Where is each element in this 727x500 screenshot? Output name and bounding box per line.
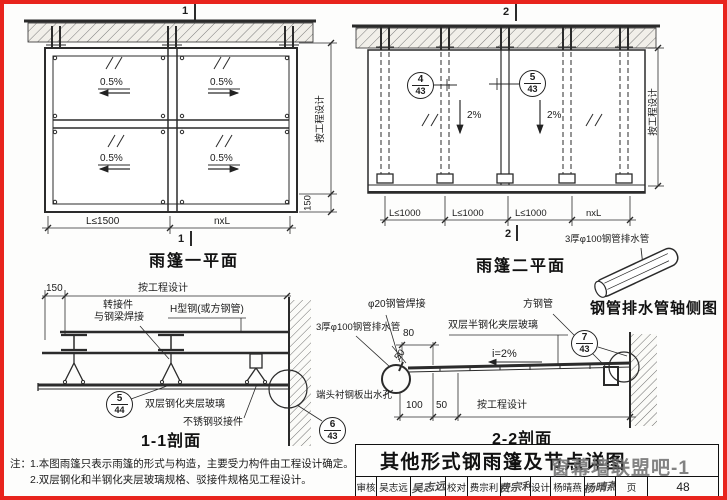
dim-label-80: 80 (403, 329, 414, 340)
dim-label-span: L≤1000 (452, 209, 484, 219)
section11-title: 1-1剖面 (141, 427, 201, 451)
detail-sheet: 43 (327, 431, 337, 442)
dim-label-design: 按工程设计 (645, 88, 659, 136)
designer-label: 设计 (531, 477, 551, 496)
slope-label: 2% (547, 111, 561, 122)
label-semi-tempered-glass: 双层半钢化夹层玻璃 (448, 321, 538, 332)
section-cut-label-1-top: 1 (182, 5, 188, 17)
note-line-2: 2.双层钢化和半钢化夹层玻璃规格、驳接件规格见工程设计。 (30, 475, 312, 486)
detail-number: 5 (524, 72, 541, 84)
section-cut-label-1-bottom: 1 (178, 233, 184, 245)
drawing-linework (0, 0, 727, 500)
checker-signature: 费宗利 (501, 477, 531, 496)
section-cut-label-2-top: 2 (503, 6, 509, 18)
label-h-steel: H型钢(或方钢管) (170, 305, 244, 316)
slope-label: 2% (467, 111, 481, 122)
detail-bubble-6-43: 6 43 (319, 417, 346, 444)
reviewer-label: 审核 (356, 477, 377, 496)
detail-number: 4 (412, 74, 429, 86)
detail-bubble-5-43: 5 43 (519, 70, 546, 97)
detail-bubble-5-44: 5 44 (106, 391, 133, 418)
detail-bubble-7-43: 7 43 (571, 330, 598, 357)
label-square-tube: 方钢管 (523, 300, 553, 311)
label-adapter: 转接件 (103, 301, 133, 312)
reviewer-signature: 吴志远 (411, 477, 446, 496)
notes-prefix: 注： (10, 459, 31, 470)
slope-label: 0.5% (100, 78, 123, 89)
pipe-axon-title: 钢管排水管轴侧图 (590, 297, 718, 318)
slope-label: 0.5% (210, 154, 233, 165)
reviewer-name: 吴志远 (377, 477, 411, 496)
label-pipe-weld: φ20钢管焊接 (368, 300, 426, 311)
section-cut-label-2-bottom: 2 (505, 228, 511, 240)
detail-sheet: 43 (415, 86, 425, 97)
label-drain-pipe: 3厚φ100钢管排水管 (316, 323, 400, 333)
detail-number: 5 (111, 393, 128, 405)
dim-label-design: 按工程设计 (477, 401, 527, 412)
dim-label-150: 150 (46, 284, 63, 295)
label-outlet-hole: 端头衬钢板出水孔 (316, 391, 392, 401)
dim-label-design: 按工程设计 (138, 284, 188, 295)
pipe-label: 3厚φ100钢管排水管 (565, 235, 649, 245)
detail-bubble-4-43: 4 43 (407, 72, 434, 99)
drawing-sheet: 1 0.5% 0.5% 0.5% 0.5% 按工程设计 150 L≤1500 n… (0, 0, 727, 500)
dim-label-span: nxL (586, 209, 601, 219)
label-laminated-glass: 双层钢化夹层玻璃 (145, 400, 225, 411)
dim-label-150: 150 (303, 195, 314, 211)
slope-label: 0.5% (210, 78, 233, 89)
detail-number: 6 (324, 419, 341, 431)
watermark: 窗幕墙联盟吧-1 (551, 453, 690, 480)
dim-label-design: 按工程设计 (312, 95, 326, 143)
label-slope: i=2% (492, 349, 517, 361)
checker-name: 费宗利 (468, 477, 501, 496)
checker-label: 校对 (446, 477, 468, 496)
dim-label-span: L≤1000 (515, 209, 547, 219)
slope-label: 0.5% (100, 154, 123, 165)
detail-sheet: 43 (527, 84, 537, 95)
plan2-title: 雨篷二平面 (476, 252, 566, 276)
label-adapter-weld: 与钢梁焊接 (94, 313, 144, 324)
detail-number: 7 (576, 332, 593, 344)
plan1-title: 雨篷一平面 (149, 247, 239, 271)
detail-sheet: 43 (579, 344, 589, 355)
dim-label-50: 50 (436, 401, 447, 412)
dim-label-100: 100 (406, 401, 423, 412)
dim-label-span: nxL (214, 217, 230, 228)
note-line-1: 1.本图雨篷只表示雨篷的形式与构造，主要受力构件由工程设计确定。 (30, 459, 354, 470)
detail-sheet: 44 (114, 405, 124, 416)
dim-label-span: L≤1000 (389, 209, 421, 219)
dim-label-span: L≤1500 (86, 217, 119, 228)
